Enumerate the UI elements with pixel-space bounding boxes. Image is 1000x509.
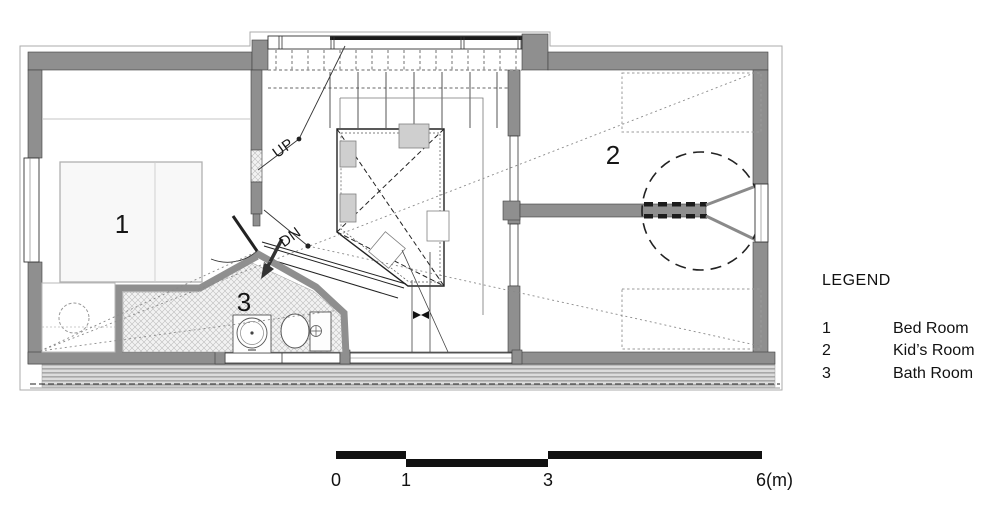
- bedside-alcove: [42, 283, 115, 352]
- scale-label-3: 3: [528, 470, 568, 491]
- legend-label-3: Bath Room: [893, 363, 973, 385]
- scale-label-6m: 6(m): [756, 470, 806, 491]
- sink: [233, 315, 271, 353]
- floor-plan-drawing: 1 2 3 UP DN: [0, 0, 1000, 509]
- legend-num-1: 1: [822, 318, 893, 340]
- wall-hall-kidsroom: [503, 70, 520, 352]
- legend-num-3: 3: [822, 363, 893, 385]
- stair-treads-up: [330, 72, 497, 128]
- bed: [60, 162, 202, 282]
- window-left-wall: [24, 158, 39, 262]
- scale-label-0: 0: [316, 470, 356, 491]
- roof-band-below: [30, 364, 780, 388]
- window-bottom-bath: [225, 353, 340, 363]
- room-label-bath-room: 3: [237, 287, 251, 317]
- legend: LEGEND 1 Bed Room 2 Kid’s Room 3 Bath Ro…: [822, 272, 992, 385]
- scale-bar-segment-1: [336, 451, 406, 459]
- legend-row: 1 Bed Room: [822, 318, 992, 340]
- scale-bar-segment-3: [548, 451, 762, 459]
- stair-void: [337, 124, 449, 286]
- room-label-bedroom: 1: [115, 209, 129, 239]
- section-bowtie-mark: [413, 311, 429, 319]
- window-bottom-hall: [350, 353, 512, 363]
- kids-room-partition: [520, 152, 760, 270]
- legend-row: 2 Kid’s Room: [822, 340, 992, 362]
- window-right-wall: [755, 184, 768, 242]
- floor-plan-page: 1 2 3 UP DN LEGEND 1 Bed Room 2 Kid’s Ro…: [0, 0, 1000, 509]
- legend-row: 3 Bath Room: [822, 363, 992, 385]
- legend-num-2: 2: [822, 340, 893, 362]
- scale-label-1: 1: [386, 470, 426, 491]
- bathroom-door: [211, 216, 257, 262]
- stair-above-dashed: [268, 50, 522, 88]
- window-top-bay: [268, 36, 522, 49]
- stair-dn-label: DN: [276, 224, 304, 251]
- wall-bedroom-hall: [251, 70, 262, 226]
- room-label-kids-room: 2: [606, 140, 620, 170]
- scale-bar-segment-2: [406, 459, 548, 467]
- legend-title: LEGEND: [822, 272, 992, 290]
- legend-label-2: Kid’s Room: [893, 340, 975, 362]
- legend-label-1: Bed Room: [893, 318, 969, 340]
